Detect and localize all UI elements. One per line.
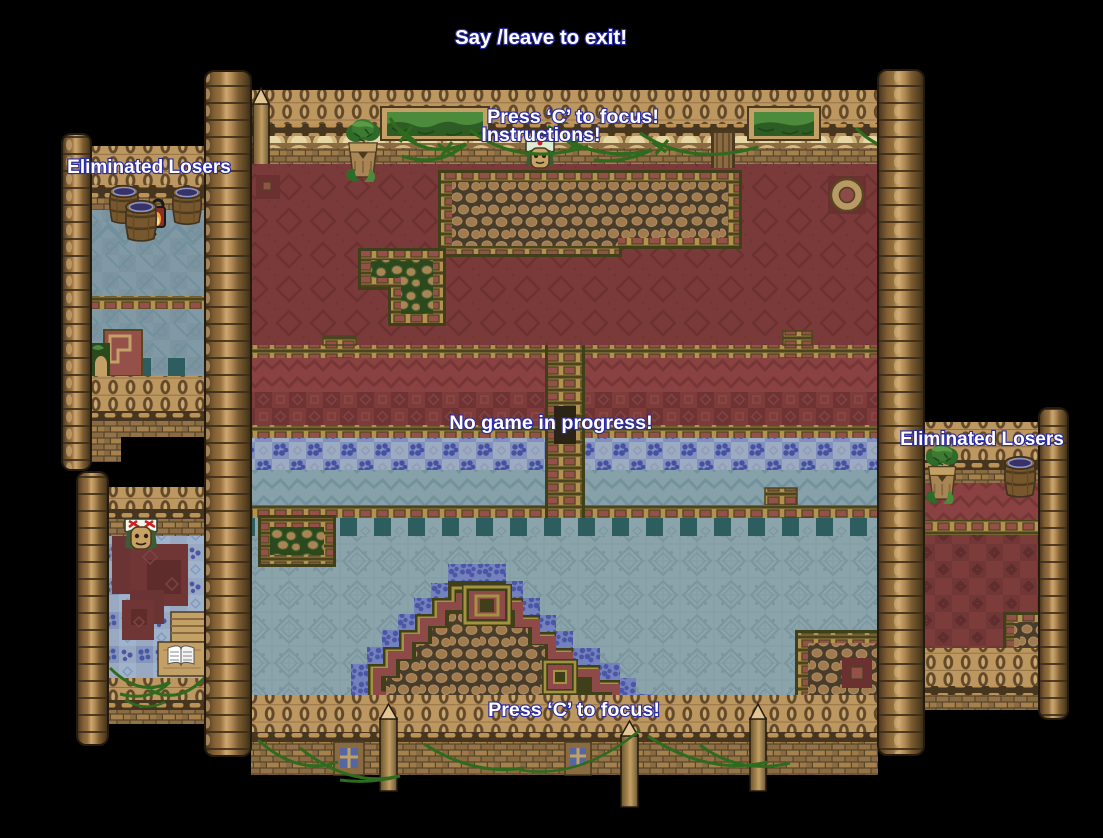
svg-text:Press ‘C’ to focus!: Press ‘C’ to focus! [488,699,660,721]
svg-text:Instructions!: Instructions! [481,124,600,146]
svg-text:Eliminated Losers: Eliminated Losers [67,157,231,178]
svg-text:No game in progress!: No game in progress! [449,412,652,434]
svg-text:Eliminated Losers: Eliminated Losers [900,429,1064,450]
svg-text:Say /leave to exit!: Say /leave to exit! [455,26,627,49]
